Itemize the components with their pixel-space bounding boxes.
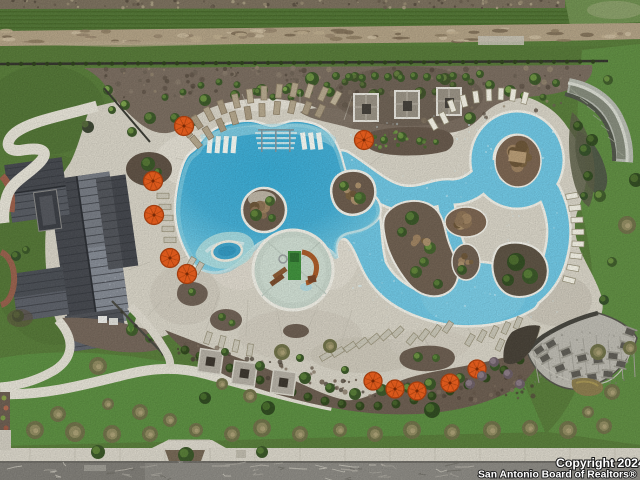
svg-text:San Antonio Board of Realtors®: San Antonio Board of Realtors® bbox=[478, 470, 637, 480]
svg-text:Copyright 2024: Copyright 2024 bbox=[556, 456, 640, 470]
